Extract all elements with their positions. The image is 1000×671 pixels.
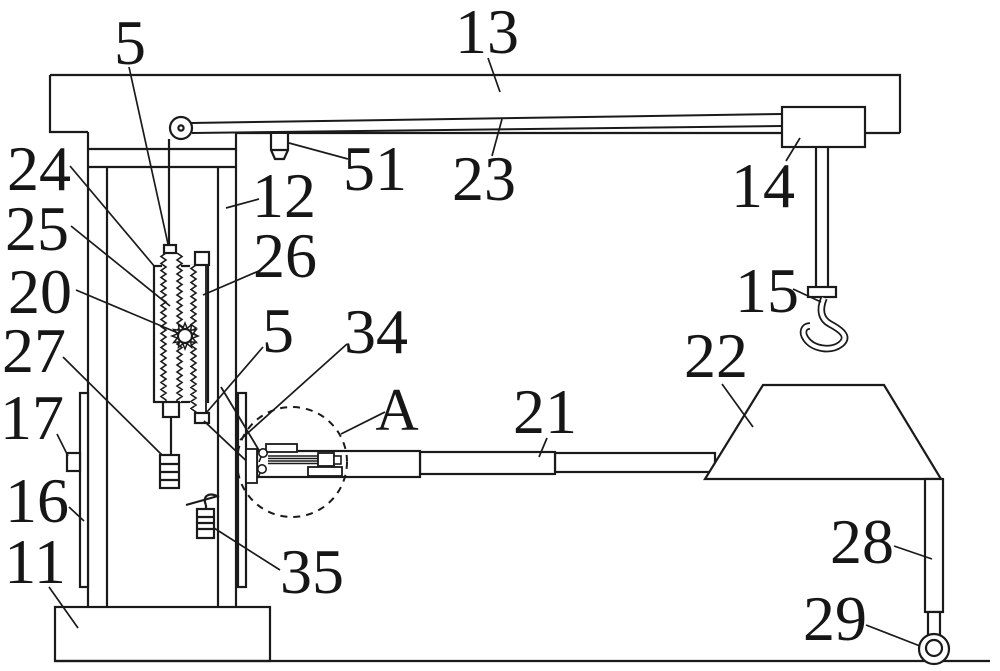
- hook-collar: [808, 287, 836, 297]
- rack-rod-top-cap: [195, 252, 209, 265]
- label-5-wire: 5: [114, 7, 146, 78]
- carriage-22: [705, 385, 941, 479]
- label-27: 27: [2, 315, 66, 386]
- label-23: 23: [452, 143, 516, 214]
- label-26: 26: [253, 220, 317, 291]
- trolley-box: [782, 107, 865, 147]
- label-15: 15: [735, 255, 799, 326]
- left-rail-plate: [80, 393, 88, 587]
- patent-figure: 5 13 24 25 20 27 17 16 11 12 26 5 34 A 5…: [0, 0, 1000, 671]
- label-11: 11: [4, 526, 66, 597]
- counterweight: [160, 417, 179, 488]
- label-A: A: [375, 377, 418, 443]
- label-25: 25: [5, 193, 69, 264]
- pull-rod: [191, 114, 782, 133]
- label-34: 34: [344, 296, 408, 367]
- base-block: [55, 607, 270, 661]
- patent-figure-canvas: 5 13 24 25 20 27 17 16 11 12 26 5 34 A 5…: [0, 0, 1000, 671]
- label-35: 35: [280, 536, 344, 607]
- gear-hub: [178, 329, 192, 343]
- label-28: 28: [830, 506, 894, 577]
- label-17: 17: [0, 382, 64, 453]
- label-21: 21: [513, 376, 577, 447]
- label-51: 51: [343, 133, 407, 204]
- rack-rod-bottom-cap: [195, 413, 209, 423]
- label-5-rack: 5: [262, 295, 294, 366]
- label-29: 29: [803, 583, 867, 654]
- buffer-weight: [186, 495, 219, 538]
- screw-rod-bottom-cap: [163, 402, 179, 417]
- label-13: 13: [455, 0, 519, 67]
- support-leg: [919, 479, 949, 664]
- pulley: [170, 117, 192, 139]
- label-22: 22: [684, 320, 748, 391]
- stopper-51: [271, 134, 288, 159]
- label-14: 14: [731, 150, 795, 221]
- screw-rod-top-cap: [164, 245, 176, 253]
